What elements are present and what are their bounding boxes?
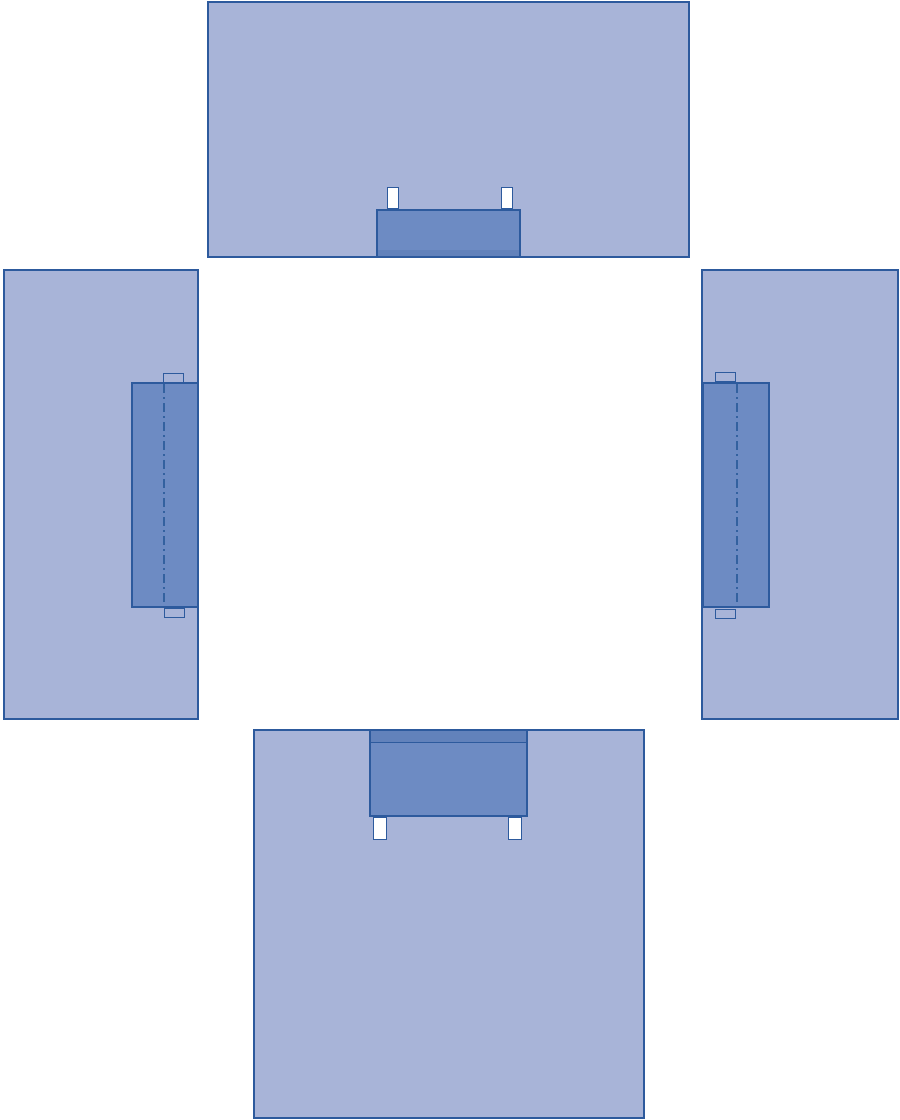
diagram-canvas: [0, 0, 900, 1120]
top-panel-block: [376, 209, 521, 258]
right-fold-line: [735, 384, 739, 606]
left-panel-block: [131, 382, 199, 608]
right-panel-tab-top: [715, 372, 736, 382]
right-panel: [701, 269, 899, 720]
bottom-panel-tab-right: [508, 817, 522, 840]
left-fold-line: [162, 384, 166, 606]
left-panel-tab-bottom: [164, 608, 185, 618]
bottom-panel-block-strip: [371, 731, 526, 743]
bottom-panel: [253, 729, 645, 1119]
left-panel-tab-top: [163, 373, 184, 383]
right-panel-tab-bottom: [715, 609, 736, 619]
bottom-panel-tab-left: [373, 817, 387, 840]
top-panel-block-strip: [378, 250, 519, 256]
top-panel-tab-left: [387, 187, 399, 209]
top-panel: [207, 1, 690, 258]
top-panel-tab-right: [501, 187, 513, 209]
bottom-panel-block: [369, 729, 528, 817]
left-panel: [3, 269, 199, 720]
right-panel-block: [702, 382, 770, 608]
